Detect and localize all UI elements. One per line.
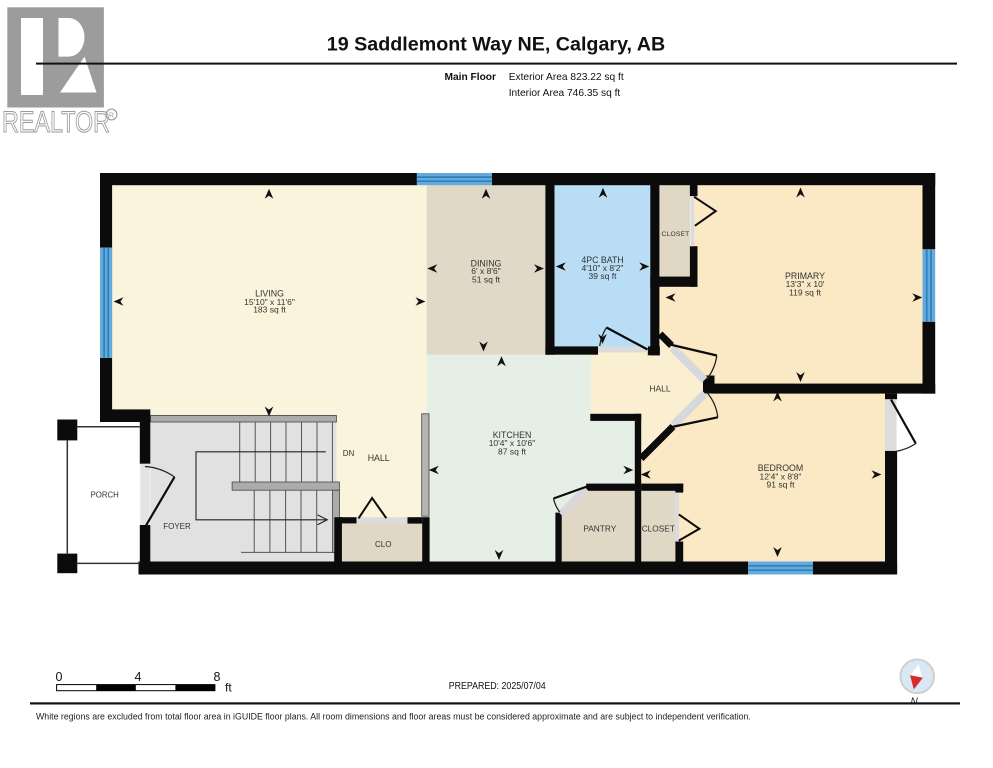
svg-text:R: R <box>109 113 114 120</box>
svg-text:8: 8 <box>214 670 221 684</box>
svg-text:HALL: HALL <box>368 453 390 463</box>
svg-text:PANTRY: PANTRY <box>583 524 616 534</box>
svg-text:Exterior Area 823.22 sq ft: Exterior Area 823.22 sq ft <box>509 72 624 83</box>
svg-text:N: N <box>911 697 919 708</box>
svg-text:CLO: CLO <box>375 540 391 549</box>
svg-text:91 sq ft: 91 sq ft <box>767 480 796 490</box>
svg-text:Interior Area 746.35 sq ft: Interior Area 746.35 sq ft <box>509 88 621 99</box>
svg-text:PREPARED: 2025/07/04: PREPARED: 2025/07/04 <box>449 680 546 692</box>
svg-text:51 sq ft: 51 sq ft <box>472 274 501 284</box>
svg-text:ft: ft <box>225 681 232 695</box>
svg-text:PORCH: PORCH <box>91 491 119 500</box>
svg-text:CLOSET: CLOSET <box>642 524 675 534</box>
svg-text:CLOSET: CLOSET <box>662 231 690 238</box>
svg-text:FOYER: FOYER <box>163 522 191 531</box>
svg-text:HALL: HALL <box>649 383 671 393</box>
svg-text:183 sq ft: 183 sq ft <box>253 305 286 315</box>
svg-text:119 sq ft: 119 sq ft <box>789 288 822 298</box>
svg-text:39 sq ft: 39 sq ft <box>589 271 618 281</box>
svg-text:4: 4 <box>135 670 142 684</box>
svg-text:Main Floor: Main Floor <box>445 72 497 83</box>
svg-text:87 sq ft: 87 sq ft <box>498 446 527 456</box>
svg-text:DN: DN <box>343 449 355 458</box>
svg-text:REALTOR: REALTOR <box>2 106 110 139</box>
svg-text:0: 0 <box>56 670 63 684</box>
svg-text:White regions are excluded fro: White regions are excluded from total fl… <box>36 712 751 722</box>
svg-text:19 Saddlemont Way NE, Calgary,: 19 Saddlemont Way NE, Calgary, AB <box>327 34 665 56</box>
